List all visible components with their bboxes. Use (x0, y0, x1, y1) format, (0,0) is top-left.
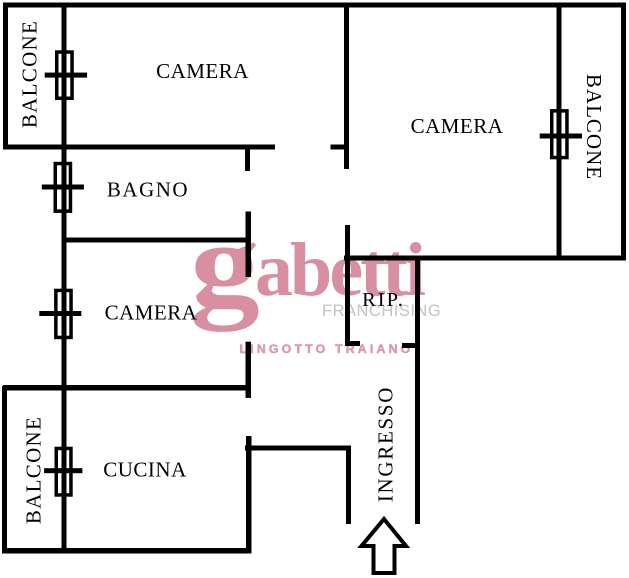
svg-text:BALCONE: BALCONE (582, 74, 606, 180)
svg-text:BAGNO: BAGNO (107, 178, 189, 202)
svg-text:BALCONE: BALCONE (18, 20, 42, 128)
svg-text:CAMERA: CAMERA (105, 301, 198, 325)
svg-text:CUCINA: CUCINA (103, 458, 187, 482)
svg-text:LINGOTTO TRAIANO: LINGOTTO TRAIANO (240, 342, 414, 356)
svg-text:CAMERA: CAMERA (411, 114, 504, 138)
svg-text:BALCONE: BALCONE (21, 416, 45, 524)
svg-text:INGRESSO: INGRESSO (374, 386, 398, 502)
svg-text:CAMERA: CAMERA (156, 59, 249, 83)
svg-text:RIP.: RIP. (362, 289, 405, 311)
